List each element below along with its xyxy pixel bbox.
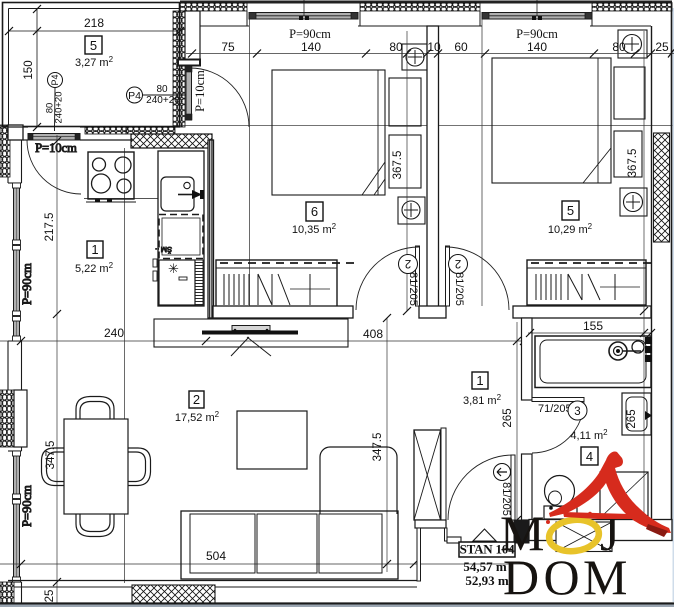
svg-text:54,57 m: 54,57 m bbox=[463, 559, 507, 574]
svg-text:218: 218 bbox=[84, 16, 104, 30]
svg-text:81/205: 81/205 bbox=[453, 272, 465, 306]
svg-text:71/205: 71/205 bbox=[538, 403, 572, 415]
svg-text:367.5: 367.5 bbox=[392, 151, 404, 180]
svg-text:17,52 m2: 17,52 m2 bbox=[175, 410, 220, 424]
svg-text:10: 10 bbox=[427, 40, 441, 54]
svg-text:2: 2 bbox=[455, 257, 461, 269]
svg-text:M: M bbox=[583, 549, 627, 605]
svg-text:4: 4 bbox=[586, 449, 593, 464]
svg-text:3: 3 bbox=[574, 406, 580, 418]
svg-text:140: 140 bbox=[527, 40, 547, 54]
svg-text:80: 80 bbox=[156, 84, 168, 95]
svg-text:75: 75 bbox=[221, 40, 235, 54]
svg-text:2: 2 bbox=[193, 392, 200, 407]
svg-text:3,27 m2: 3,27 m2 bbox=[75, 55, 114, 69]
svg-text:240+20: 240+20 bbox=[54, 92, 65, 124]
svg-text:367.5: 367.5 bbox=[627, 149, 639, 178]
svg-text:P=90cm: P=90cm bbox=[20, 263, 34, 305]
svg-text:81/205: 81/205 bbox=[407, 272, 419, 306]
svg-text:408: 408 bbox=[363, 327, 383, 341]
svg-text:O: O bbox=[544, 549, 580, 605]
svg-text:3,81 m2: 3,81 m2 bbox=[463, 393, 502, 407]
svg-text:25: 25 bbox=[44, 590, 56, 603]
svg-text:217.5: 217.5 bbox=[44, 213, 56, 242]
svg-text:504: 504 bbox=[206, 549, 226, 563]
svg-text:60: 60 bbox=[454, 40, 468, 54]
svg-text:4,11 m2: 4,11 m2 bbox=[570, 428, 608, 442]
svg-text:265: 265 bbox=[502, 408, 514, 427]
svg-text:80: 80 bbox=[389, 40, 403, 54]
svg-text:5,22 m2: 5,22 m2 bbox=[75, 261, 114, 275]
svg-text:P=10cm: P=10cm bbox=[193, 70, 207, 112]
svg-text:155: 155 bbox=[583, 319, 603, 333]
svg-text:10,35 m2: 10,35 m2 bbox=[292, 222, 337, 236]
svg-text:1: 1 bbox=[91, 242, 98, 257]
svg-text:80: 80 bbox=[612, 40, 626, 54]
svg-text:1: 1 bbox=[476, 373, 483, 388]
svg-text:P=90cm: P=90cm bbox=[289, 27, 331, 41]
svg-text:P=90cm: P=90cm bbox=[20, 485, 34, 527]
svg-text:P4: P4 bbox=[128, 90, 141, 102]
svg-text:6: 6 bbox=[311, 204, 318, 219]
svg-text:10,29 m2: 10,29 m2 bbox=[548, 222, 593, 236]
svg-text:150: 150 bbox=[23, 60, 35, 79]
svg-text:265: 265 bbox=[626, 409, 638, 428]
svg-text:D: D bbox=[503, 549, 539, 605]
svg-text:240: 240 bbox=[104, 326, 124, 340]
svg-text:ŠM ··: ŠM ·· bbox=[155, 245, 172, 254]
svg-text:25: 25 bbox=[655, 40, 669, 54]
svg-text:140: 140 bbox=[301, 40, 321, 54]
svg-text:✳: ✳ bbox=[168, 261, 179, 276]
svg-text:5: 5 bbox=[567, 203, 574, 218]
svg-text:2: 2 bbox=[405, 257, 411, 269]
svg-text:5: 5 bbox=[90, 38, 97, 53]
svg-text:P=90cm: P=90cm bbox=[516, 27, 558, 41]
svg-text:P=10cm: P=10cm bbox=[35, 141, 77, 155]
svg-text:P4: P4 bbox=[50, 74, 60, 85]
